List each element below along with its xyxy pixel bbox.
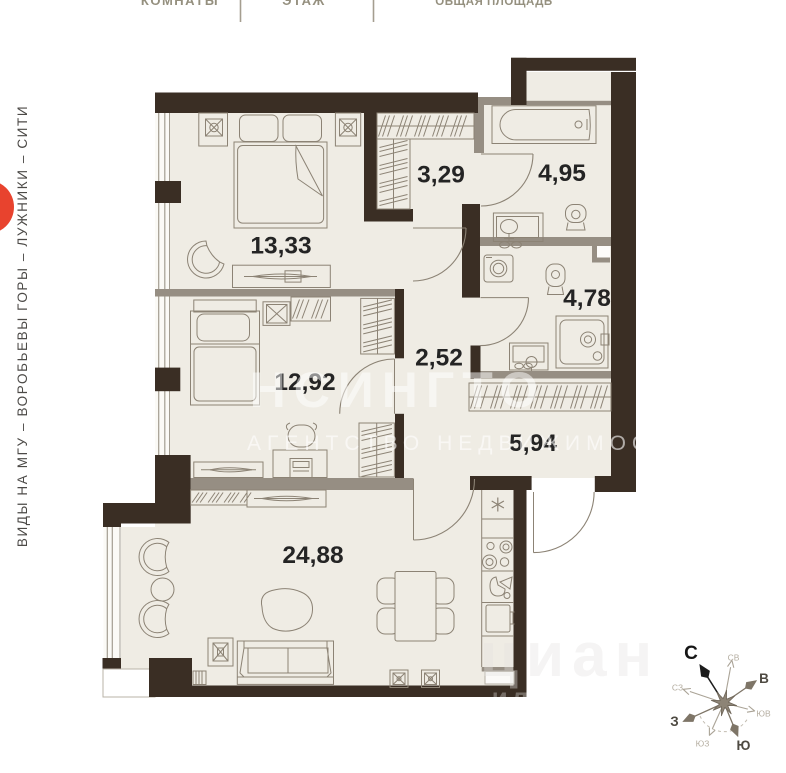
svg-text:24,88: 24,88 — [282, 542, 343, 569]
svg-text:4,78: 4,78 — [563, 285, 611, 312]
svg-text:13,33: 13,33 — [250, 233, 311, 260]
svg-text:НСИНГТО: НСИНГТО — [250, 362, 547, 418]
svg-text:3,29: 3,29 — [417, 162, 465, 189]
svg-text:ЮЗ: ЮЗ — [696, 739, 710, 749]
svg-text:КОМНАТЫ: КОМНАТЫ — [141, 0, 219, 8]
svg-text:Ю: Ю — [737, 738, 751, 753]
svg-text:ВИДЫ НА МГУ – ВОРОБЬЕВЫ ГОРЫ: ВИДЫ НА МГУ – ВОРОБЬЕВЫ ГОРЫ – ЛУЖНИКИ –… — [15, 105, 30, 547]
svg-text:4,95: 4,95 — [538, 160, 586, 187]
svg-text:АГЕНТСТВО НЕДВИЖИМОС: АГЕНТСТВО НЕДВИЖИМОС — [247, 432, 653, 455]
svg-text:В: В — [759, 671, 769, 686]
svg-text:СЗ: СЗ — [672, 683, 683, 693]
svg-text:СВ: СВ — [728, 653, 740, 663]
svg-text:З: З — [670, 714, 678, 729]
svg-text:ил: ил — [492, 682, 533, 712]
svg-text:ОБЩАЯ ПЛОЩАДЬ: ОБЩАЯ ПЛОЩАДЬ — [435, 0, 552, 8]
svg-text:циан: циан — [480, 621, 660, 690]
svg-text:ЭТАЖ: ЭТАЖ — [282, 0, 326, 8]
svg-text:ЮВ: ЮВ — [756, 709, 771, 719]
svg-text:С: С — [684, 643, 698, 664]
